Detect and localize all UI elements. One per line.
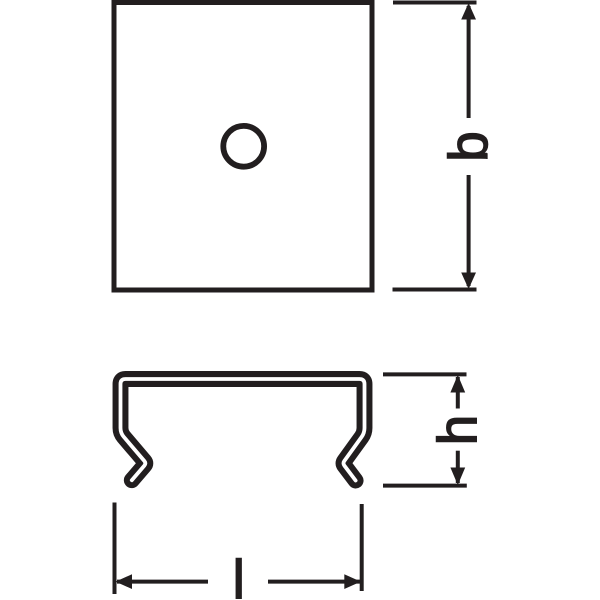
svg-text:l: l (233, 548, 245, 600)
svg-text:h: h (426, 415, 488, 445)
svg-text:b: b (437, 131, 499, 161)
